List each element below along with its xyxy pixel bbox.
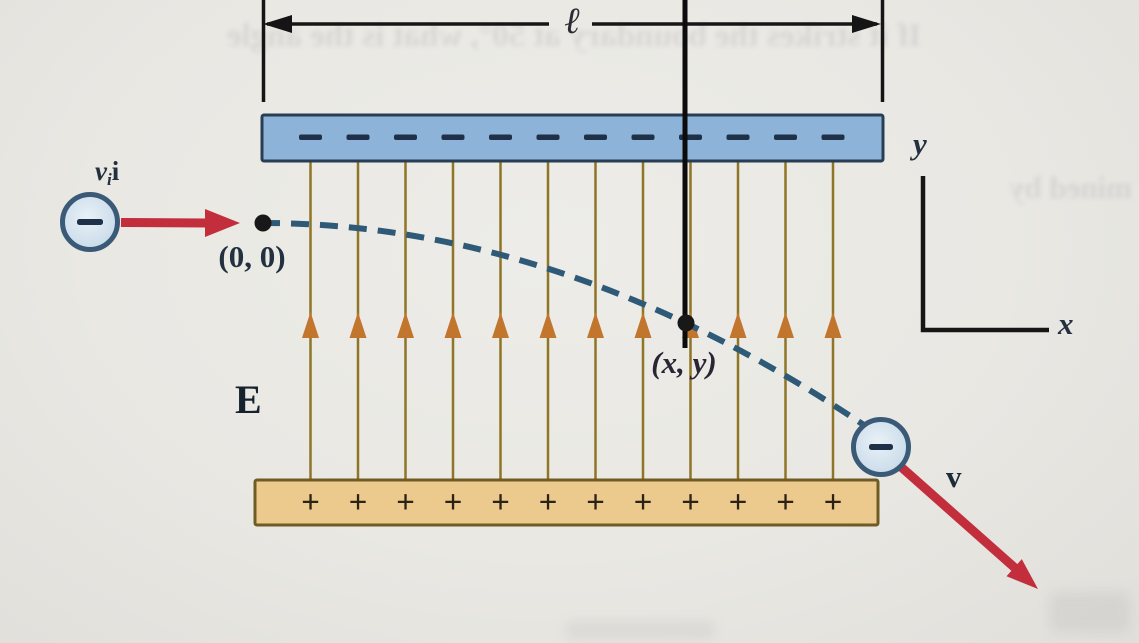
field-line-arrowhead-icon (397, 312, 414, 338)
dimension-arrow-right-icon (852, 15, 881, 33)
minus-charge-icon (537, 135, 560, 141)
plus-charge-icon: + (729, 485, 748, 521)
minus-charge-icon (774, 135, 797, 141)
field-line-arrowhead-icon (777, 312, 794, 338)
minus-charge-icon (489, 135, 512, 141)
origin-label: (0, 0) (200, 241, 304, 272)
coordinate-axes (923, 176, 1049, 330)
minus-charge-icon (584, 135, 607, 141)
y-axis-label: y (913, 128, 927, 159)
xy-dot (678, 315, 695, 332)
unit-vector-i: i (112, 156, 120, 186)
figure-canvas: If it strikes the boundary at 50°, what … (0, 0, 1139, 643)
field-line-arrowhead-icon (635, 312, 652, 338)
field-line-arrowhead-icon (730, 312, 747, 338)
final-velocity-arrow (900, 466, 1038, 589)
minus-charge-icon (347, 135, 370, 141)
electron-entry (63, 195, 118, 250)
plus-charge-icon: + (824, 485, 843, 521)
plus-charge-icon: + (539, 485, 558, 521)
plus-charge-icon: + (776, 485, 795, 521)
minus-charge-icon (727, 135, 750, 141)
plus-charge-icon: + (444, 485, 463, 521)
velocity-scalar: v (95, 156, 107, 186)
plus-charge-icon: + (491, 485, 510, 521)
x-axis-label: x (1058, 308, 1074, 339)
arrow-right-icon (205, 209, 240, 237)
minus-charge-icon (299, 135, 322, 141)
field-line-arrowhead-icon (445, 312, 462, 338)
final-velocity-label: v (946, 461, 962, 492)
plus-charge-icon: + (681, 485, 700, 521)
minus-charge-icon (394, 135, 417, 141)
electron-exit (854, 420, 909, 475)
field-line-arrowhead-icon (350, 312, 367, 338)
field-line-arrowhead-icon (587, 312, 604, 338)
plate-length-label: ℓ (552, 3, 592, 40)
field-line-arrowhead-icon (540, 312, 557, 338)
electric-field-label: E (235, 380, 262, 420)
origin-dot (255, 215, 272, 232)
diagram-artwork: ++++++++++++ (0, 0, 1139, 643)
minus-icon (869, 444, 893, 450)
minus-charge-icon (632, 135, 655, 141)
deflection-point-label: (x, y) (636, 347, 732, 378)
plus-charge-icon: + (586, 485, 605, 521)
field-line-arrowhead-icon (302, 312, 319, 338)
initial-velocity-label: vii (95, 158, 119, 188)
minus-charge-icon (822, 135, 845, 141)
plus-charge-icon: + (301, 485, 320, 521)
field-line-arrowhead-icon (825, 312, 842, 338)
initial-velocity-arrow (121, 209, 240, 237)
dimension-arrow-left-icon (263, 15, 292, 33)
plus-charge-icon: + (634, 485, 653, 521)
electric-field-lines (302, 162, 842, 480)
plus-charge-icon: + (349, 485, 368, 521)
minus-icon (77, 219, 103, 225)
minus-charge-icon (442, 135, 465, 141)
field-line-arrowhead-icon (492, 312, 509, 338)
minus-charge-icon (679, 135, 702, 141)
plus-charge-icon: + (396, 485, 415, 521)
